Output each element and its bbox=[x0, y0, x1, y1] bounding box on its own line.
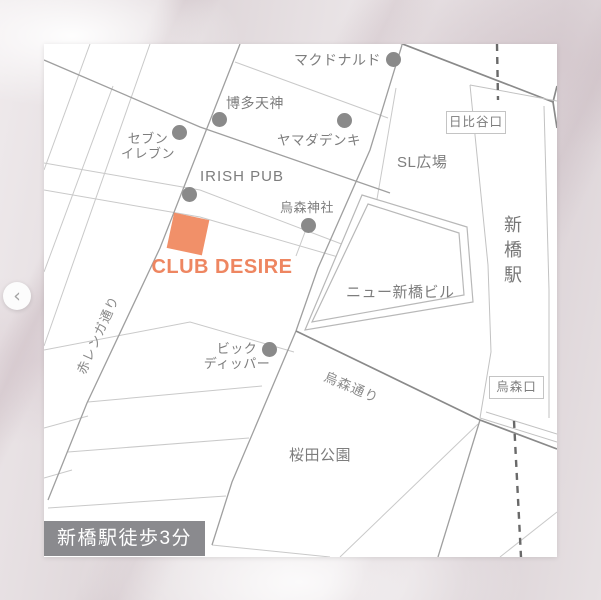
irish-pub-marker-dot bbox=[182, 187, 197, 202]
karasumori-shrine-marker-dot bbox=[301, 218, 316, 233]
landmark-hakata-tenjin-label: 博多天神 bbox=[226, 95, 284, 112]
big-dipper-marker-dot bbox=[262, 342, 277, 357]
venue-name: CLUB DESIRE bbox=[148, 256, 296, 279]
seven-eleven-line2: イレブン bbox=[112, 146, 184, 161]
chevron-left-icon: ‹ bbox=[3, 283, 31, 309]
instagram-map-post: { "venue": { "name": "CLUB DESIRE" }, "l… bbox=[0, 0, 601, 600]
venue-location-square bbox=[167, 213, 210, 256]
area-new-shinbashi-building-label: ニュー新橋ビル bbox=[346, 284, 455, 302]
yamada-denki-marker-dot bbox=[337, 113, 352, 128]
station-name-vertical: 新橋駅 bbox=[499, 215, 525, 290]
landmark-yamada-denki-label: ヤマダデンキ bbox=[277, 133, 361, 149]
landmark-karasumori-shrine-label: 烏森神社 bbox=[280, 200, 334, 215]
station-exit-karasumori: 烏森口 bbox=[489, 376, 544, 399]
hakata-tenjin-marker-dot bbox=[212, 112, 227, 127]
mcdonalds-marker-dot bbox=[386, 52, 401, 67]
station-exit-hibiya: 日比谷口 bbox=[446, 111, 506, 134]
carousel-prev-button[interactable]: ‹ bbox=[3, 282, 31, 310]
area-sl-plaza-label: SL広場 bbox=[397, 154, 447, 172]
landmark-irish-pub-label: IRISH PUB bbox=[200, 168, 284, 186]
landmark-mcdonalds-label: マクドナルド bbox=[294, 52, 381, 69]
seven-eleven-marker-dot bbox=[172, 125, 187, 140]
walk-time-badge: 新橋駅徒歩3分 bbox=[44, 521, 205, 556]
area-sakurada-park-label: 桜田公園 bbox=[289, 447, 351, 465]
big-dipper-line2: ディッパー bbox=[193, 356, 281, 371]
